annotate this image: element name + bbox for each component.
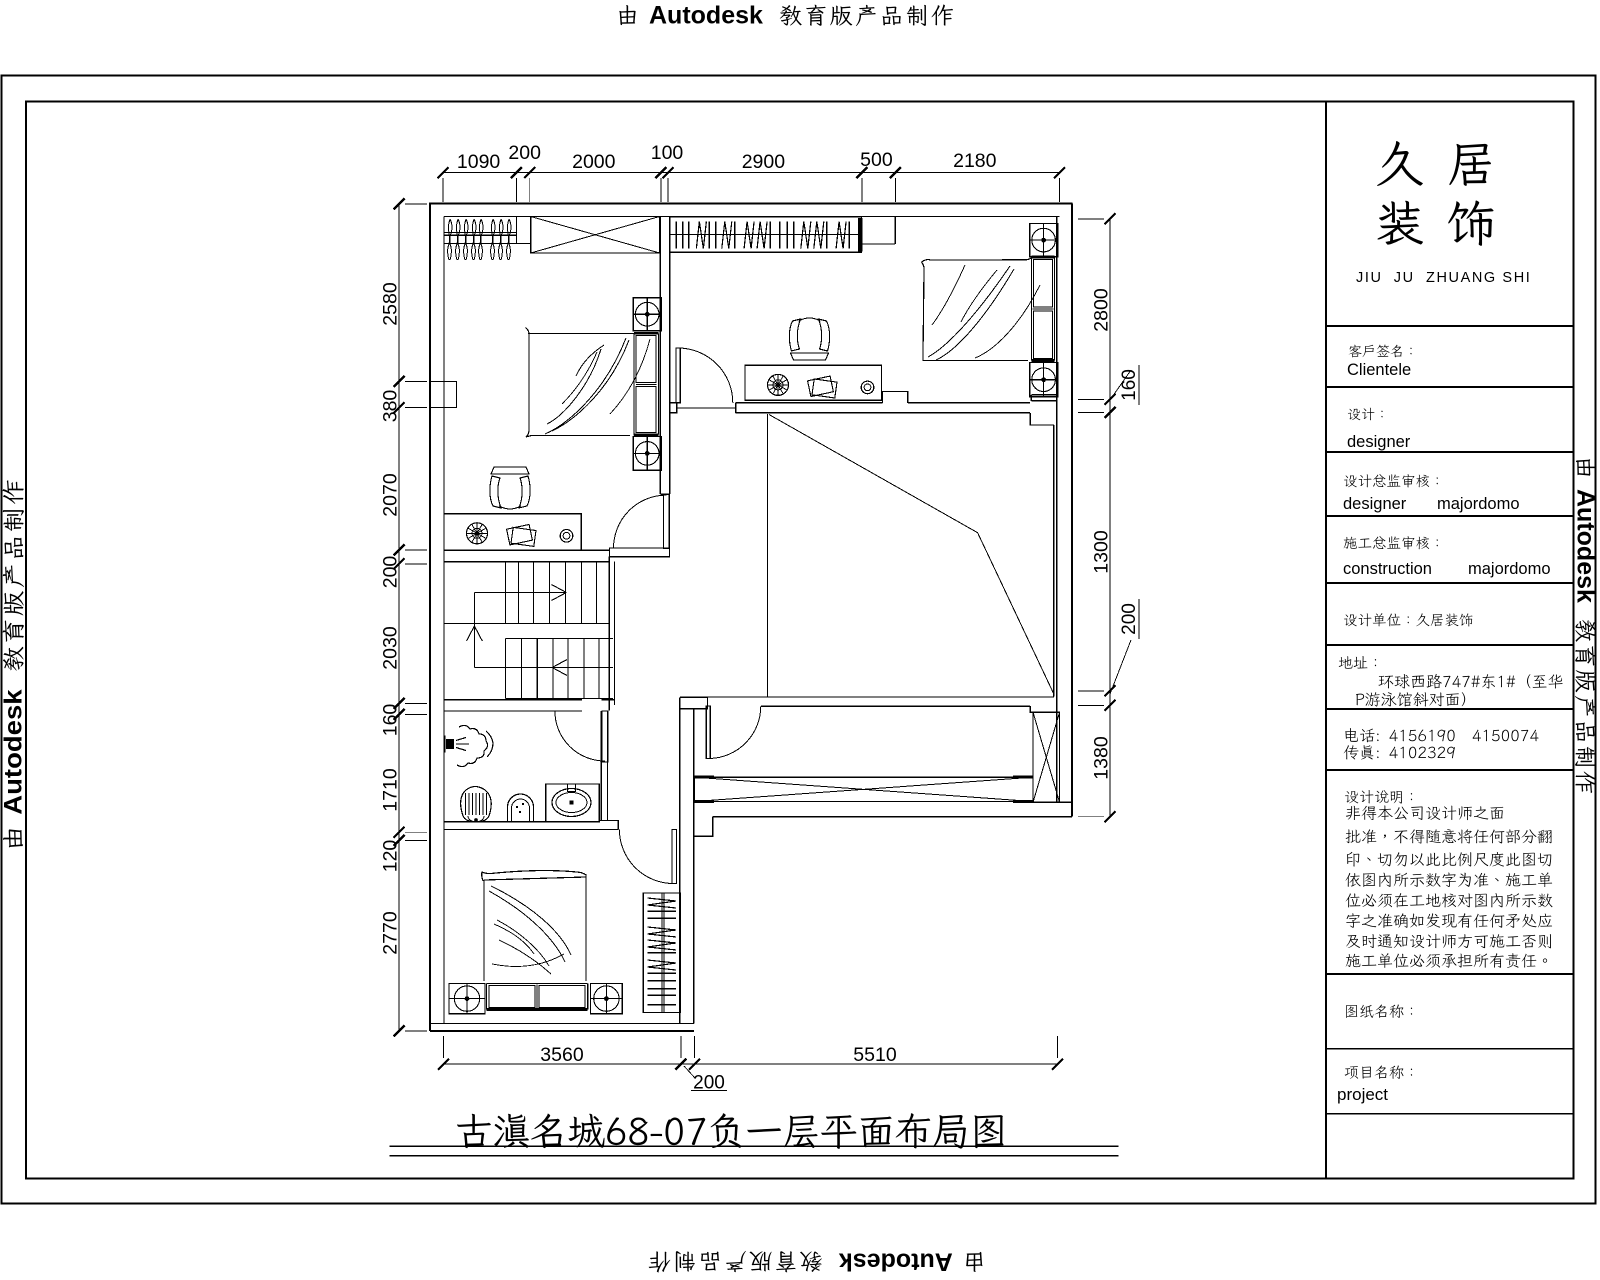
svg-text:2180: 2180 xyxy=(953,150,997,172)
svg-text:500: 500 xyxy=(860,149,893,171)
svg-text:construction: construction xyxy=(1343,560,1432,578)
svg-text:project: project xyxy=(1337,1085,1388,1104)
svg-text:1710: 1710 xyxy=(380,768,402,812)
svg-text:majordomo: majordomo xyxy=(1437,495,1520,513)
svg-text:200: 200 xyxy=(380,556,402,589)
svg-text:Autodesk: Autodesk xyxy=(649,2,763,30)
svg-text:5510: 5510 xyxy=(853,1044,897,1066)
svg-text:designer: designer xyxy=(1343,495,1407,513)
svg-text:designer: designer xyxy=(1347,433,1411,451)
svg-text:majordomo: majordomo xyxy=(1468,560,1551,578)
svg-text:Autodesk: Autodesk xyxy=(839,1248,953,1276)
svg-text:2000: 2000 xyxy=(572,151,616,173)
svg-text:2070: 2070 xyxy=(380,473,402,517)
svg-text:200: 200 xyxy=(508,142,541,164)
svg-text:Autodesk: Autodesk xyxy=(1572,489,1600,603)
svg-text:Clientele: Clientele xyxy=(1347,361,1411,379)
svg-text:2770: 2770 xyxy=(380,911,402,955)
svg-text:1090: 1090 xyxy=(457,151,501,173)
svg-text:160: 160 xyxy=(380,704,402,737)
svg-text:200: 200 xyxy=(1119,603,1140,635)
svg-text:2900: 2900 xyxy=(742,151,786,173)
svg-text:3560: 3560 xyxy=(540,1044,584,1066)
svg-text:2030: 2030 xyxy=(380,626,402,670)
svg-text:120: 120 xyxy=(380,840,402,873)
svg-text:2580: 2580 xyxy=(380,282,402,326)
svg-text:1380: 1380 xyxy=(1091,736,1113,780)
svg-text:380: 380 xyxy=(380,390,402,423)
svg-text:100: 100 xyxy=(651,142,684,164)
svg-text:160: 160 xyxy=(1119,369,1140,401)
svg-text:JIU JU ZHUANG SHI: JIU JU ZHUANG SHI xyxy=(1356,270,1531,286)
svg-text:1300: 1300 xyxy=(1091,530,1113,574)
svg-text:2800: 2800 xyxy=(1091,288,1113,332)
svg-text:Autodesk: Autodesk xyxy=(0,689,27,815)
